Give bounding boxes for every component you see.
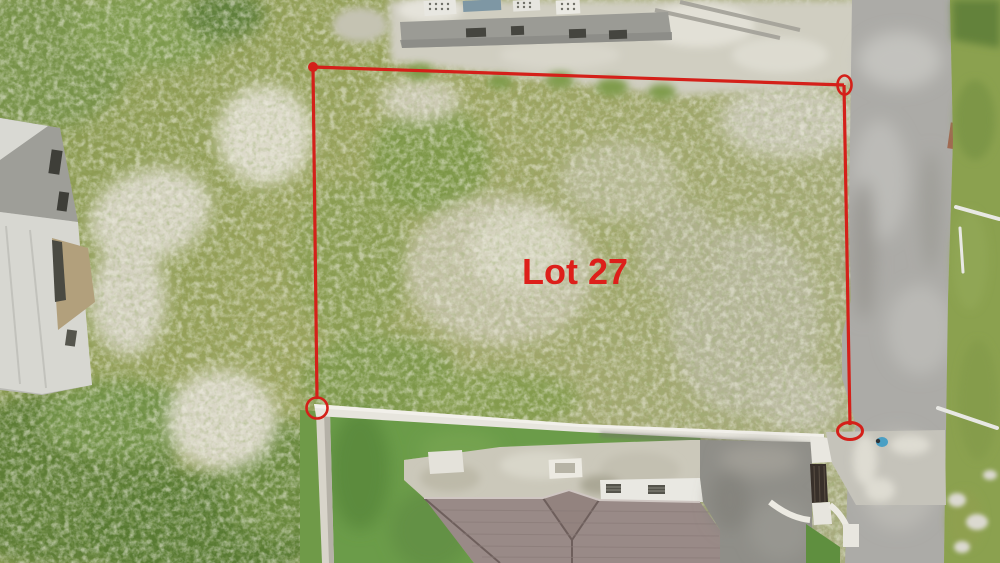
svg-text:Lot 27: Lot 27 (522, 251, 628, 292)
